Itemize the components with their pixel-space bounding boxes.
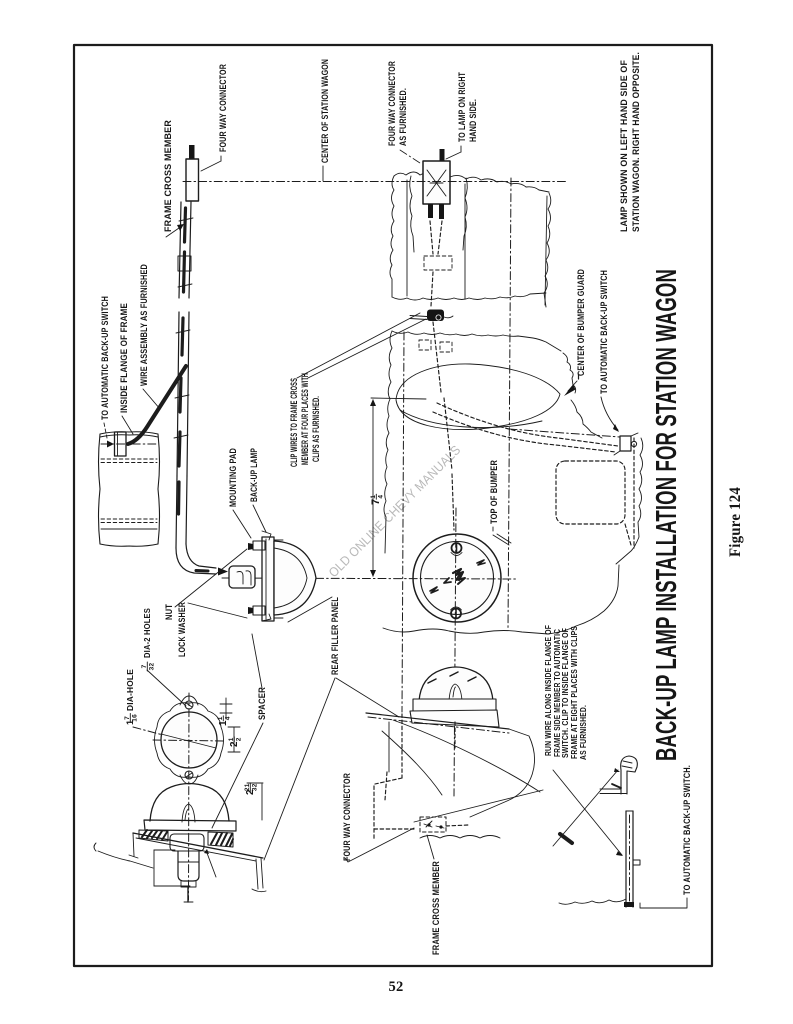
svg-text:1: 1 bbox=[370, 495, 377, 499]
svg-text:STATION WAGON. RIGHT HAND OPPO: STATION WAGON. RIGHT HAND OPPOSITE. bbox=[631, 52, 642, 232]
svg-text:WIRE ASSEMBLY AS FURNISHED: WIRE ASSEMBLY AS FURNISHED bbox=[139, 264, 149, 386]
svg-text:TO AUTOMATIC BACK-UP SWITCH: TO AUTOMATIC BACK-UP SWITCH bbox=[100, 296, 110, 420]
svg-text:32: 32 bbox=[252, 783, 259, 791]
svg-text:BACK-UP LAMP INSTALLATION FOR: BACK-UP LAMP INSTALLATION FOR STATION WA… bbox=[651, 269, 683, 761]
svg-text:TOP OF BUMPER: TOP OF BUMPER bbox=[489, 460, 499, 524]
svg-text:BACK-UP LAMP: BACK-UP LAMP bbox=[249, 448, 259, 502]
svg-text:AS FURNISHED.: AS FURNISHED. bbox=[578, 705, 588, 760]
svg-text:CENTER OF BUMPER GUARD: CENTER OF BUMPER GUARD bbox=[576, 269, 586, 376]
svg-text:SPACER: SPACER bbox=[257, 687, 267, 720]
svg-text:LAMP SHOWN ON LEFT HAND SIDE O: LAMP SHOWN ON LEFT HAND SIDE OF bbox=[619, 60, 630, 232]
svg-text:TO AUTOMATIC BACK-UP SWITCH.: TO AUTOMATIC BACK-UP SWITCH. bbox=[682, 765, 692, 895]
svg-text:16: 16 bbox=[132, 714, 139, 722]
svg-text:MOUNTING PAD: MOUNTING PAD bbox=[228, 448, 238, 507]
svg-text:FOUR WAY CONNECTOR: FOUR WAY CONNECTOR bbox=[218, 64, 228, 152]
svg-text:INSIDE FLANGE OF FRAME: INSIDE FLANGE OF FRAME bbox=[119, 303, 129, 413]
svg-text:21: 21 bbox=[244, 783, 251, 791]
svg-text:CLIP WIRES TO FRAME CROSS: CLIP WIRES TO FRAME CROSS bbox=[289, 378, 299, 467]
svg-text:FRAME CROSS MEMBER: FRAME CROSS MEMBER bbox=[163, 120, 174, 232]
svg-text:7: 7 bbox=[141, 664, 148, 668]
svg-text:FOUR WAY CONNECTOR: FOUR WAY CONNECTOR bbox=[387, 61, 397, 146]
svg-text:TO AUTOMATIC BACK-UP SWITCH: TO AUTOMATIC BACK-UP SWITCH bbox=[599, 270, 609, 394]
svg-text:DIA-HOLE: DIA-HOLE bbox=[125, 669, 135, 711]
svg-text:Figure 124: Figure 124 bbox=[727, 487, 744, 557]
svg-text:52: 52 bbox=[389, 979, 404, 995]
svg-text:2: 2 bbox=[236, 737, 243, 741]
svg-text:1: 1 bbox=[217, 716, 224, 720]
svg-text:7: 7 bbox=[124, 716, 131, 720]
svg-text:LOCK WASHER: LOCK WASHER bbox=[177, 602, 187, 657]
svg-text:1: 1 bbox=[228, 737, 235, 741]
svg-text:4: 4 bbox=[225, 716, 232, 720]
svg-text:7: 7 bbox=[370, 499, 382, 505]
svg-text:CLIPS AS FURNISHED.: CLIPS AS FURNISHED. bbox=[311, 396, 321, 462]
svg-text:MEMBER AT FOUR PLACES WITH: MEMBER AT FOUR PLACES WITH bbox=[300, 373, 310, 465]
svg-text:TO LAMP ON RIGHT: TO LAMP ON RIGHT bbox=[457, 72, 467, 142]
svg-text:CENTER OF STATION WAGON: CENTER OF STATION WAGON bbox=[320, 59, 330, 163]
svg-text:REAR FILLER PANEL: REAR FILLER PANEL bbox=[330, 597, 340, 675]
svg-text:AS FURNISHED.: AS FURNISHED. bbox=[398, 88, 408, 146]
svg-text:HAND SIDE.: HAND SIDE. bbox=[468, 99, 478, 142]
svg-text:FOUR WAY CONNECTOR: FOUR WAY CONNECTOR bbox=[342, 773, 352, 861]
svg-text:NUT: NUT bbox=[164, 604, 174, 620]
svg-text:DIA-2 HOLES: DIA-2 HOLES bbox=[142, 608, 152, 658]
svg-text:4: 4 bbox=[378, 495, 385, 499]
svg-text:FRAME CROSS MEMBER: FRAME CROSS MEMBER bbox=[431, 861, 441, 955]
svg-text:32: 32 bbox=[149, 663, 156, 671]
